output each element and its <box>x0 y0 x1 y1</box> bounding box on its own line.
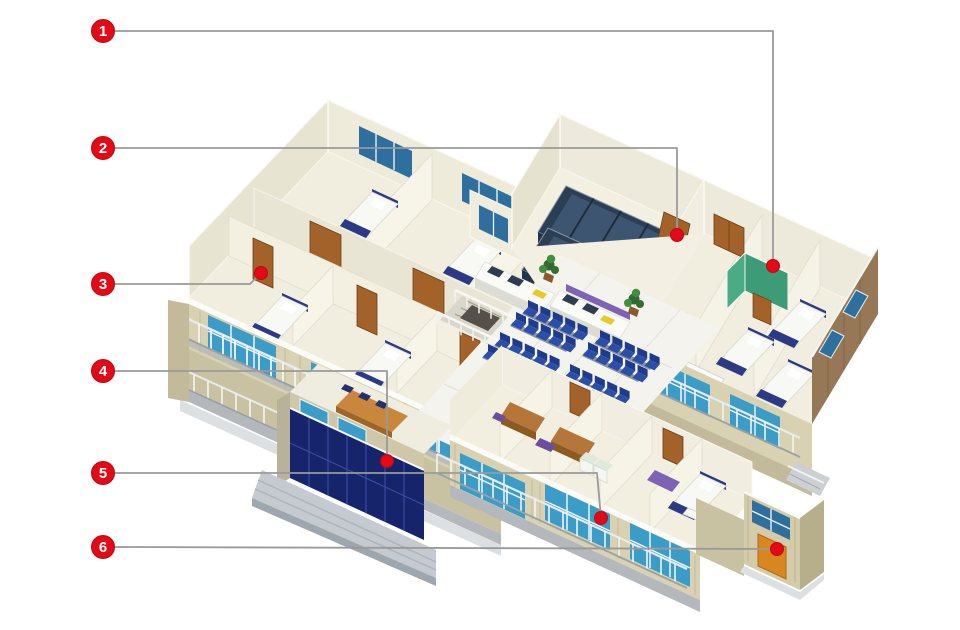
callout-1-number: 1 <box>99 23 107 40</box>
callout-2-number: 2 <box>99 140 107 157</box>
callout-5-number: 5 <box>99 465 107 482</box>
callout-3-number: 3 <box>99 276 107 293</box>
callout-1-target-dot <box>767 260 780 273</box>
callout-3-target-dot <box>255 267 268 280</box>
callout-2-target-dot <box>671 229 684 242</box>
callout-6-number: 6 <box>99 539 107 556</box>
callout-5-target-dot <box>595 512 608 525</box>
callout-4-target-dot <box>381 455 394 468</box>
floorplan-figure: 123456 <box>0 0 960 630</box>
callout-6-target-dot <box>771 543 784 556</box>
isometric-building-svg: 123456 <box>0 0 960 630</box>
callout-4-number: 4 <box>99 363 108 380</box>
